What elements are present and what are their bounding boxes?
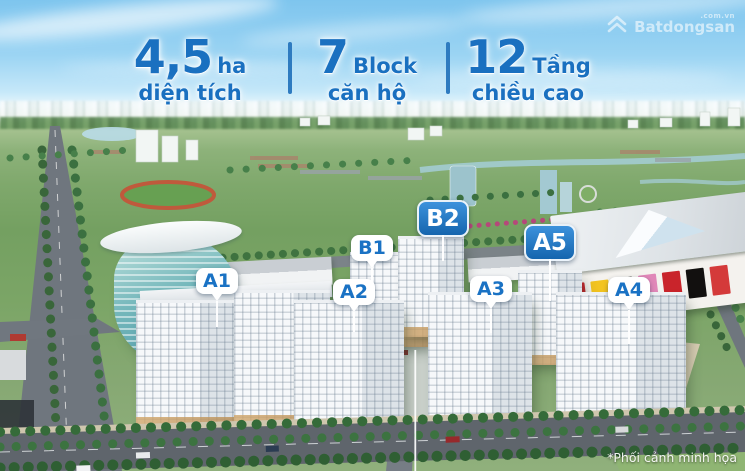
- building-label-a5: A5: [524, 224, 576, 261]
- stat-label: chiều cao: [433, 81, 623, 105]
- stat-floors: 12 Tầng chiều cao: [433, 36, 623, 105]
- label-pointer-line: [549, 259, 551, 301]
- label-pointer-line: [628, 310, 630, 344]
- stat-unit: Block: [353, 57, 417, 77]
- label-pointer-line: [371, 268, 373, 296]
- building-label-a1: A1: [196, 268, 238, 294]
- building-label-text: A2: [340, 281, 368, 303]
- building-label-text: A1: [203, 270, 231, 292]
- label-pointer-line: [353, 312, 355, 332]
- building-label-a3: A3: [470, 276, 512, 302]
- building-label-text: B2: [426, 206, 460, 232]
- label-pointer-line: [216, 301, 218, 327]
- stat-value: 12: [465, 36, 527, 80]
- building-label-b1: B1: [351, 235, 393, 261]
- label-pointer-line: [490, 309, 492, 333]
- image-divider-line: [414, 350, 416, 471]
- stat-unit: ha: [217, 57, 246, 77]
- stat-value: 4,5: [134, 36, 213, 80]
- building-label-text: B1: [358, 237, 386, 259]
- stat-value: 7: [317, 36, 348, 80]
- stat-unit: Tầng: [532, 57, 590, 77]
- watermark: .com.vn Batdongsan: [605, 12, 735, 36]
- building-label-a2: A2: [333, 279, 375, 305]
- watermark-house-icon: [605, 12, 629, 36]
- aerial-render-scene: A1 A2 A3 A4 A5 B1 B2 4,5 ha diện tích 7 …: [0, 0, 745, 471]
- stat-label: diện tích: [95, 81, 285, 105]
- building-label-b2: B2: [417, 200, 469, 237]
- building-label-text: A5: [533, 230, 567, 256]
- stat-area: 4,5 ha diện tích: [95, 36, 285, 105]
- building-label-text: A3: [477, 278, 505, 300]
- building-label-a4: A4: [608, 277, 650, 303]
- building-label-text: A4: [615, 279, 643, 301]
- label-pointer-line: [442, 235, 444, 261]
- watermark-name: Batdongsan: [634, 20, 735, 35]
- render-disclaimer-caption: *Phối cảnh minh họa: [607, 450, 737, 465]
